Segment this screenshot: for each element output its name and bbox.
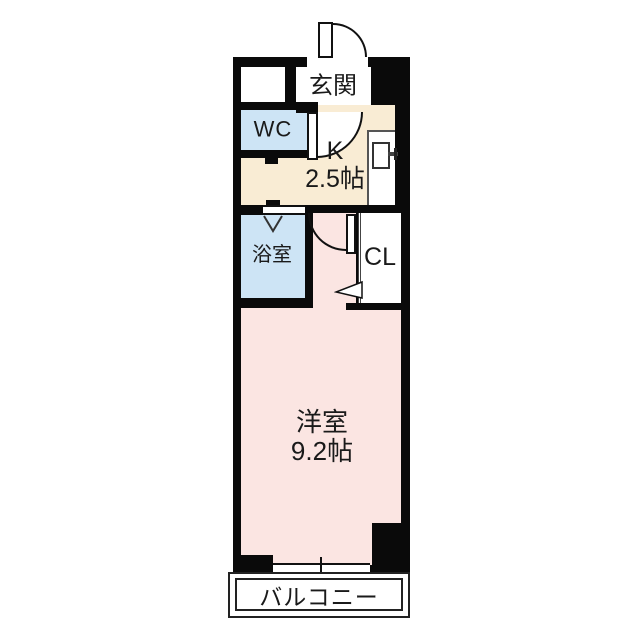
kitchen-label: K 2.5帖: [305, 137, 365, 193]
main-room-size-label: 9.2帖: [291, 437, 353, 466]
floor-plan: バルコニー 玄関 WC K 2.5帖 浴室 CL 洋室 9.2帖: [0, 0, 640, 640]
wall-nub: [265, 150, 278, 164]
entry-opening: [307, 57, 368, 68]
balcony-label: バルコニー: [259, 578, 379, 612]
balcony-inner: バルコニー: [235, 578, 403, 611]
genkan-label: 玄関: [309, 74, 357, 101]
main-room-type-label: 洋室: [291, 408, 353, 437]
wall-corner-bottom-left: [241, 555, 273, 567]
folding-door-arrow-icon: [258, 214, 288, 234]
closet-door-arrow-icon: [334, 279, 364, 303]
kitchen-size-label: 2.5帖: [305, 165, 365, 193]
kitchen-type-label: K: [305, 137, 365, 165]
closet-label: CL: [364, 243, 396, 271]
main-room-label: 洋室 9.2帖: [291, 408, 353, 466]
bathroom-label: 浴室: [252, 244, 292, 266]
main-room-door-leaf-icon: [346, 214, 356, 254]
wc-label: WC: [254, 118, 293, 143]
closet-bottom-wall: [346, 303, 410, 310]
entry-door-arc-icon: [333, 23, 367, 57]
pillar-bottom-right: [372, 523, 410, 573]
balcony: バルコニー: [228, 572, 410, 618]
entry-door-leaf-icon: [318, 22, 333, 58]
water-heater-knob-icon: [394, 148, 397, 160]
pipe-space-box: [241, 67, 285, 102]
